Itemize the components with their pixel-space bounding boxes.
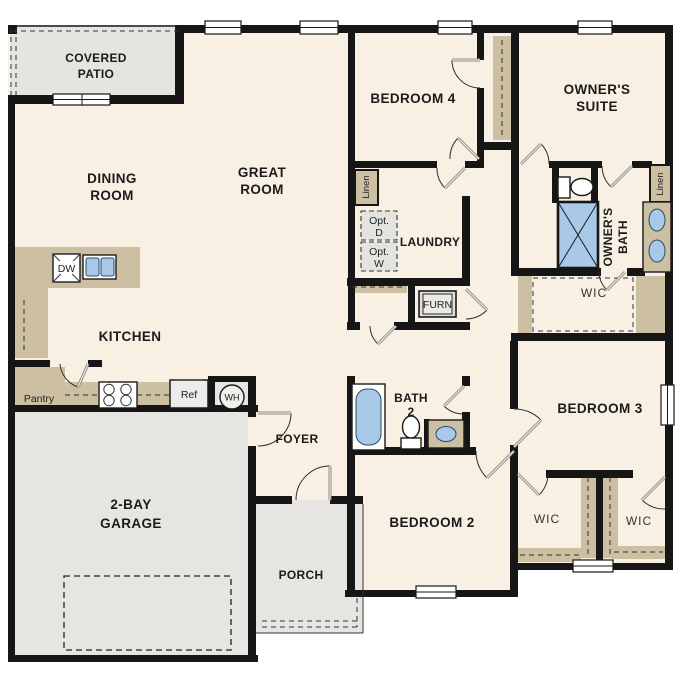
porch-slab <box>256 500 363 633</box>
bedroom3-label: BEDROOM 3 <box>557 401 642 416</box>
window-dining <box>205 21 241 34</box>
dining-room-label-1: DINING <box>87 171 137 186</box>
great-room-label-2: ROOM <box>240 182 284 197</box>
opt-dryer-label-2: D <box>375 227 383 239</box>
porch-label: PORCH <box>279 568 324 582</box>
garage-label-1: 2-BAY <box>110 497 151 512</box>
owners-suite-label-2: SUITE <box>576 99 618 114</box>
bath2-label-2: 2 <box>408 405 415 419</box>
toilet-bath2-icon <box>401 416 421 449</box>
patio-sliding-door <box>53 94 110 105</box>
covered-patio-label-2: PATIO <box>78 67 114 81</box>
owners-wic-shelf-right <box>636 276 668 336</box>
kitchen-label: KITCHEN <box>99 329 162 344</box>
window-wic-rear <box>573 560 613 572</box>
opt-dryer-label-1: Opt. <box>369 215 389 227</box>
wic-right-label: WIC <box>626 514 652 528</box>
owners-wic-label: WIC <box>581 286 607 300</box>
window-bedroom2 <box>416 586 456 598</box>
ref-label: Ref <box>181 389 197 401</box>
laundry-label: LAUNDRY <box>400 235 460 249</box>
bath2-label-1: BATH <box>394 391 428 405</box>
window-bedroom4 <box>438 21 472 34</box>
kitchen-sink-icon <box>83 255 116 279</box>
owners-suite-label-1: OWNER'S <box>564 82 631 97</box>
window-great-room <box>300 21 338 34</box>
bathtub-icon <box>352 384 385 450</box>
shower-icon <box>558 202 598 268</box>
svg-text:Linen: Linen <box>655 172 666 195</box>
vanity-owners <box>643 202 671 272</box>
svg-text:OWNER'S: OWNER'S <box>601 208 615 267</box>
linen-owners-label: Linen <box>655 172 666 195</box>
kitchen-counter-left <box>15 288 48 358</box>
floor-plan-canvas: COVERED PATIO DINING ROOM GREAT ROOM KIT… <box>0 0 687 687</box>
svg-text:Linen: Linen <box>361 175 372 198</box>
covered-patio-label-1: COVERED <box>65 51 126 65</box>
pantry-label: Pantry <box>24 393 55 405</box>
dining-room-label-2: ROOM <box>90 188 134 203</box>
owners-wic-shelf-left <box>518 276 532 336</box>
wh-label: WH <box>225 393 240 403</box>
opt-washer-label-2: W <box>374 258 384 270</box>
range-icon <box>99 382 137 408</box>
svg-text:BATH: BATH <box>616 220 630 254</box>
dw-label: DW <box>58 263 76 275</box>
wic-left-label: WIC <box>534 512 560 526</box>
bedroom2-label: BEDROOM 2 <box>389 515 474 530</box>
garage-slab <box>15 412 248 655</box>
foyer-label: FOYER <box>276 432 319 446</box>
furn-label: FURN <box>423 299 452 311</box>
window-bedroom3 <box>661 385 674 425</box>
great-room-label-1: GREAT <box>238 165 287 180</box>
linen-laundry-label: Linen <box>361 175 372 198</box>
garage-label-2: GARAGE <box>100 516 162 531</box>
window-owners-suite <box>578 21 612 34</box>
opt-washer-label-1: Opt. <box>369 246 389 258</box>
wic-right-bottom-shelf <box>612 546 665 559</box>
floor-plan: COVERED PATIO DINING ROOM GREAT ROOM KIT… <box>0 0 687 687</box>
bedroom4-label: BEDROOM 4 <box>370 91 455 106</box>
vanity-bath2 <box>428 420 464 448</box>
